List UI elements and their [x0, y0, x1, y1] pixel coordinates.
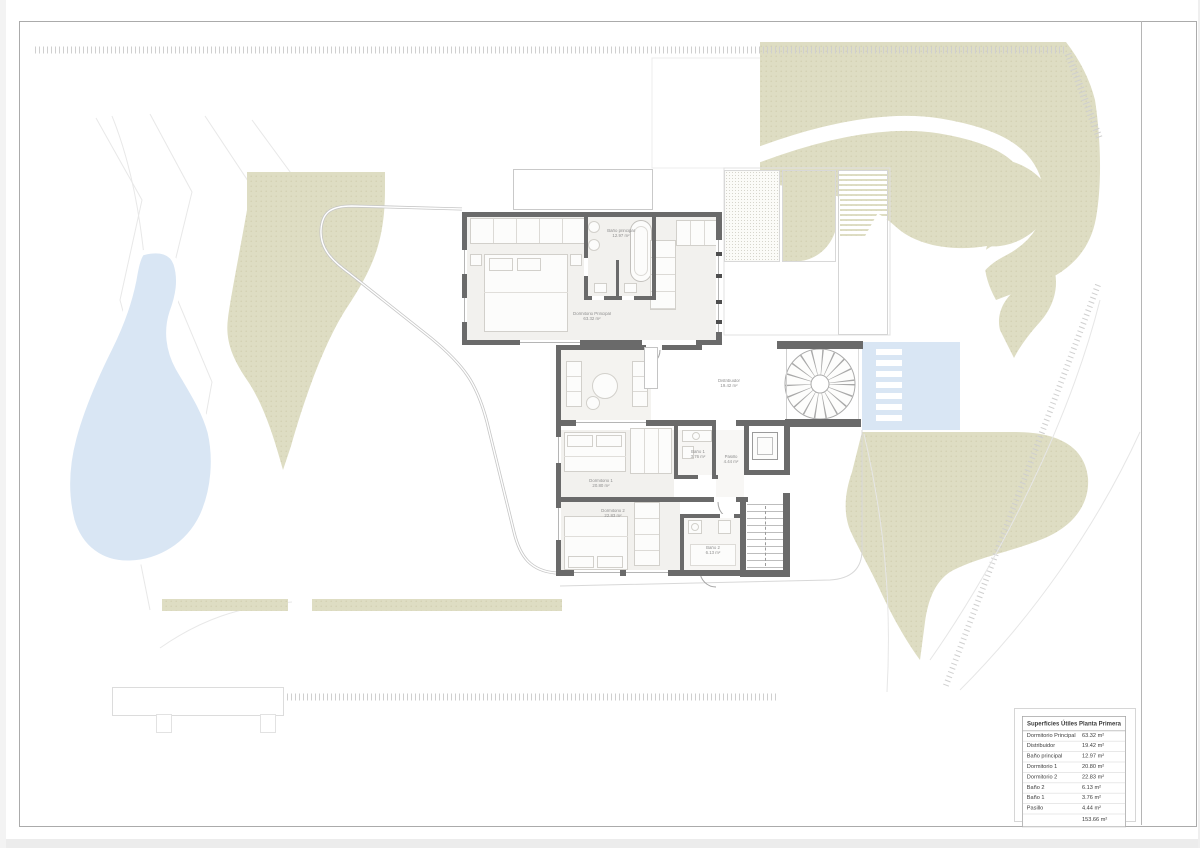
gravel-roof-terrace — [724, 170, 780, 262]
row-value: 63.32 m² — [1082, 733, 1122, 739]
wall-segment — [784, 425, 790, 475]
window-glass — [576, 422, 646, 423]
table-row: Baño principal 12.97 m² — [1023, 752, 1125, 762]
skylight-roof — [513, 169, 653, 210]
window-glass — [464, 250, 465, 274]
table-row: Distribuidor 19.42 m² — [1023, 742, 1125, 752]
table-row: Baño 2 6.13 m² — [1023, 783, 1125, 793]
bed-fold-line — [484, 292, 568, 293]
side-table — [586, 396, 600, 410]
door-leaf — [644, 347, 658, 389]
area-table: Superficies Útiles Planta Primera Dormit… — [1022, 716, 1126, 827]
row-label: Baño principal — [1027, 754, 1082, 760]
elevator-car-inner — [757, 437, 773, 455]
row-label: Pasillo — [1027, 806, 1082, 812]
door-opening — [698, 475, 712, 479]
door-opening — [592, 296, 604, 300]
wall-segment — [662, 345, 702, 350]
window-glass — [574, 572, 620, 573]
room-label-distribuidor: Distribuidor 19.42 m² — [692, 379, 766, 389]
row-value: 3.76 m² — [1082, 795, 1122, 801]
row-label: Dormitorio 2 — [1027, 774, 1082, 780]
room-label-pasillo: Pasillo 4.44 m² — [694, 455, 768, 465]
bench-leg — [156, 714, 172, 733]
area-table-title: Superficies Útiles Planta Primera — [1023, 717, 1125, 731]
washbasin — [588, 239, 600, 251]
pillow — [568, 556, 594, 568]
window-glass — [558, 437, 559, 463]
window — [626, 570, 668, 576]
room-area: 20.80 m² — [564, 484, 638, 489]
row-label: Distribuidor — [1027, 743, 1082, 749]
floor-plan-sheet: Baño principal 12.97 m² Dormitorio Princ… — [0, 0, 1200, 848]
pillow — [489, 258, 513, 271]
room-area: 19.42 m² — [692, 384, 766, 389]
pillow — [597, 556, 623, 568]
terrace-line — [786, 349, 787, 419]
window-glass — [626, 572, 668, 573]
door-opening — [642, 340, 696, 345]
bench-leg — [260, 714, 276, 733]
table-row: Dormitorio 1 20.80 m² — [1023, 762, 1125, 772]
row-label: Baño 2 — [1027, 785, 1082, 791]
washbasin-bowl — [691, 523, 699, 531]
room-area: 63.32 m² — [555, 317, 629, 322]
wall-segment — [783, 493, 790, 576]
room-area: 22.83 m² — [576, 514, 650, 519]
wall-segment — [646, 420, 716, 426]
wall-segment — [462, 212, 467, 345]
pool-shape — [68, 251, 214, 563]
nightstand — [470, 254, 482, 266]
wall-segment — [785, 419, 861, 427]
row-value: 20.80 m² — [1082, 764, 1122, 770]
bed-fold-line — [564, 536, 628, 537]
wall-segment — [744, 470, 790, 475]
wall-segment — [680, 514, 684, 571]
door-opening — [714, 497, 736, 502]
wardrobe — [470, 218, 586, 244]
mullion-tick — [716, 300, 722, 304]
table-row: Baño 1 3.76 m² — [1023, 794, 1125, 804]
table-row: Dormitorio 2 22.83 m² — [1023, 773, 1125, 783]
room-label-dormitorio-2: Dormitorio 2 22.83 m² — [576, 509, 650, 519]
room-label-bano-2: Baño 2 6.13 m² — [676, 546, 750, 556]
door-opening — [584, 258, 588, 276]
pillow — [567, 435, 593, 447]
wall-segment — [744, 425, 749, 475]
room-label-dormitorio-1: Dormitorio 1 20.80 m² — [564, 479, 638, 489]
wall-segment — [556, 345, 561, 425]
room-label-bano-principal: Baño principal 12.97 m² — [584, 229, 658, 239]
mullion-tick — [716, 274, 722, 278]
sofa — [676, 220, 720, 246]
total-value: 153.66 m² — [1082, 817, 1122, 823]
coffee-table — [592, 373, 618, 399]
mullion-tick — [716, 252, 722, 256]
garden-bench — [112, 687, 284, 716]
bidet — [624, 283, 637, 293]
door-opening — [720, 514, 734, 518]
window-glass — [520, 342, 580, 343]
bed-fold-line — [564, 456, 626, 457]
pillow — [596, 435, 622, 447]
window — [574, 570, 620, 576]
wall-segment — [556, 345, 646, 350]
row-label: Baño 1 — [1027, 795, 1082, 801]
room-area: 6.13 m² — [676, 551, 750, 556]
toilet — [594, 283, 607, 293]
table-row: Pasillo 4.44 m² — [1023, 804, 1125, 814]
green-pocket-frame — [782, 170, 836, 262]
mullion-tick — [716, 320, 722, 324]
table-total-row: 153.66 m² — [1023, 814, 1125, 826]
room-area: 4.44 m² — [694, 460, 768, 465]
window-glass — [558, 508, 559, 540]
pillow — [517, 258, 541, 271]
row-value: 12.97 m² — [1082, 754, 1122, 760]
wall-segment — [777, 341, 863, 349]
toilet — [718, 520, 731, 534]
nightstand — [570, 254, 582, 266]
window-glass — [464, 298, 465, 322]
water-steps — [876, 349, 902, 425]
row-label: Dormitorio Principal — [1027, 733, 1082, 739]
room-label-dormitorio-principal: Dormitorio Principal 63.32 m² — [555, 312, 629, 322]
row-label: Dormitorio 1 — [1027, 764, 1082, 770]
door-opening — [622, 296, 634, 300]
row-value: 4.44 m² — [1082, 806, 1122, 812]
room-area: 12.97 m² — [584, 234, 658, 239]
wall-segment — [462, 212, 722, 217]
water-feature — [862, 342, 960, 430]
row-value: 19.42 m² — [1082, 743, 1122, 749]
pergola-slats — [838, 170, 888, 335]
spiral-staircase — [785, 349, 855, 419]
wall-segment — [616, 260, 619, 296]
staircase — [747, 504, 783, 568]
row-value: 22.83 m² — [1082, 774, 1122, 780]
total-label — [1027, 817, 1082, 823]
row-value: 6.13 m² — [1082, 785, 1122, 791]
terrace-line — [858, 349, 859, 419]
wall-segment — [740, 497, 746, 572]
table-row: Dormitorio Principal 63.32 m² — [1023, 731, 1125, 741]
washbasin — [692, 432, 700, 440]
sofa — [566, 361, 582, 407]
